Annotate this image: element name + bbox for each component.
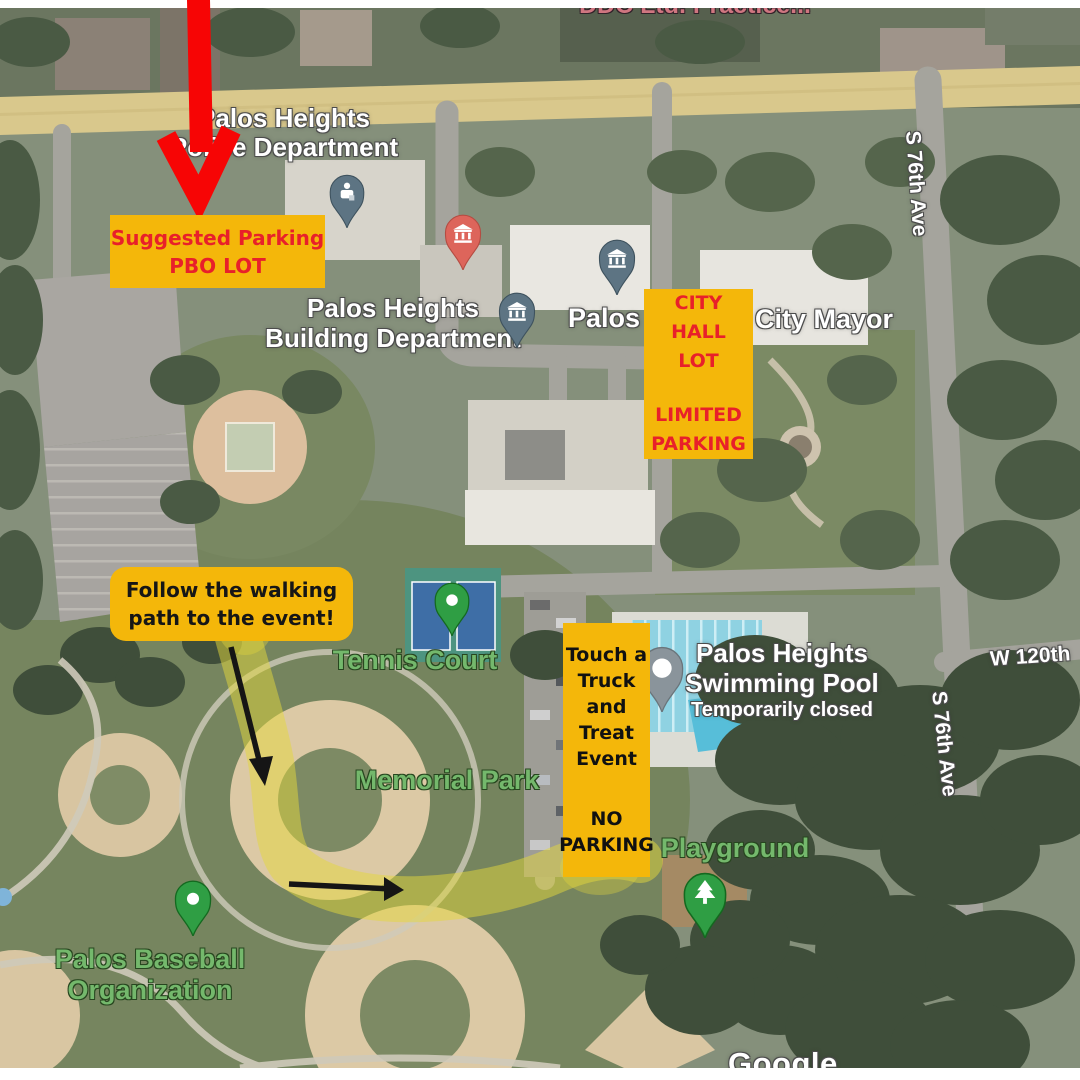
police-station-pin <box>326 173 368 228</box>
map-label-city-mayor: City Mayor <box>755 304 893 335</box>
suggested-parking-box: Suggested Parking PBO LOT <box>110 215 325 288</box>
map-label-baseball-org: Palos Baseball Organization <box>55 944 246 1006</box>
dot-icon <box>187 893 199 905</box>
map-label-building-dept: Palos Heights Building Department <box>265 293 521 353</box>
building-dept-pin <box>495 291 539 348</box>
dot-icon <box>652 659 671 678</box>
tennis-court-pin <box>431 581 473 636</box>
event-no-parking-box: Touch a Truck and Treat Event NO PARKING <box>563 623 650 877</box>
baseball-org-pin <box>171 879 215 936</box>
map-label-palos-partial: Palos <box>568 303 640 334</box>
map-label-memorial-park: Memorial Park <box>355 765 540 796</box>
city-hall-pin-gray <box>595 238 639 295</box>
flyer-canvas: DDC Ltd. Practice... Palos Heights Polic… <box>0 0 1080 1080</box>
follow-path-box: Follow the walking path to the event! <box>110 567 353 641</box>
dot-icon <box>446 594 458 606</box>
map-label-playground: Playground <box>661 833 810 864</box>
pool-status: Temporarily closed <box>685 698 879 722</box>
red-arrow <box>145 0 255 215</box>
city-hall-lot-box: CITY HALL LOT LIMITED PARKING <box>644 289 753 459</box>
city-hall-pin-red <box>441 213 485 270</box>
map-label-swimming-pool: Palos Heights Swimming Pool Temporarily … <box>685 638 879 722</box>
map-label-tennis-court: Tennis Court <box>333 645 498 676</box>
google-watermark: Google <box>728 1046 838 1068</box>
map-label-business: DDC Ltd. Practice... <box>579 8 811 20</box>
playground-pin <box>679 871 731 938</box>
